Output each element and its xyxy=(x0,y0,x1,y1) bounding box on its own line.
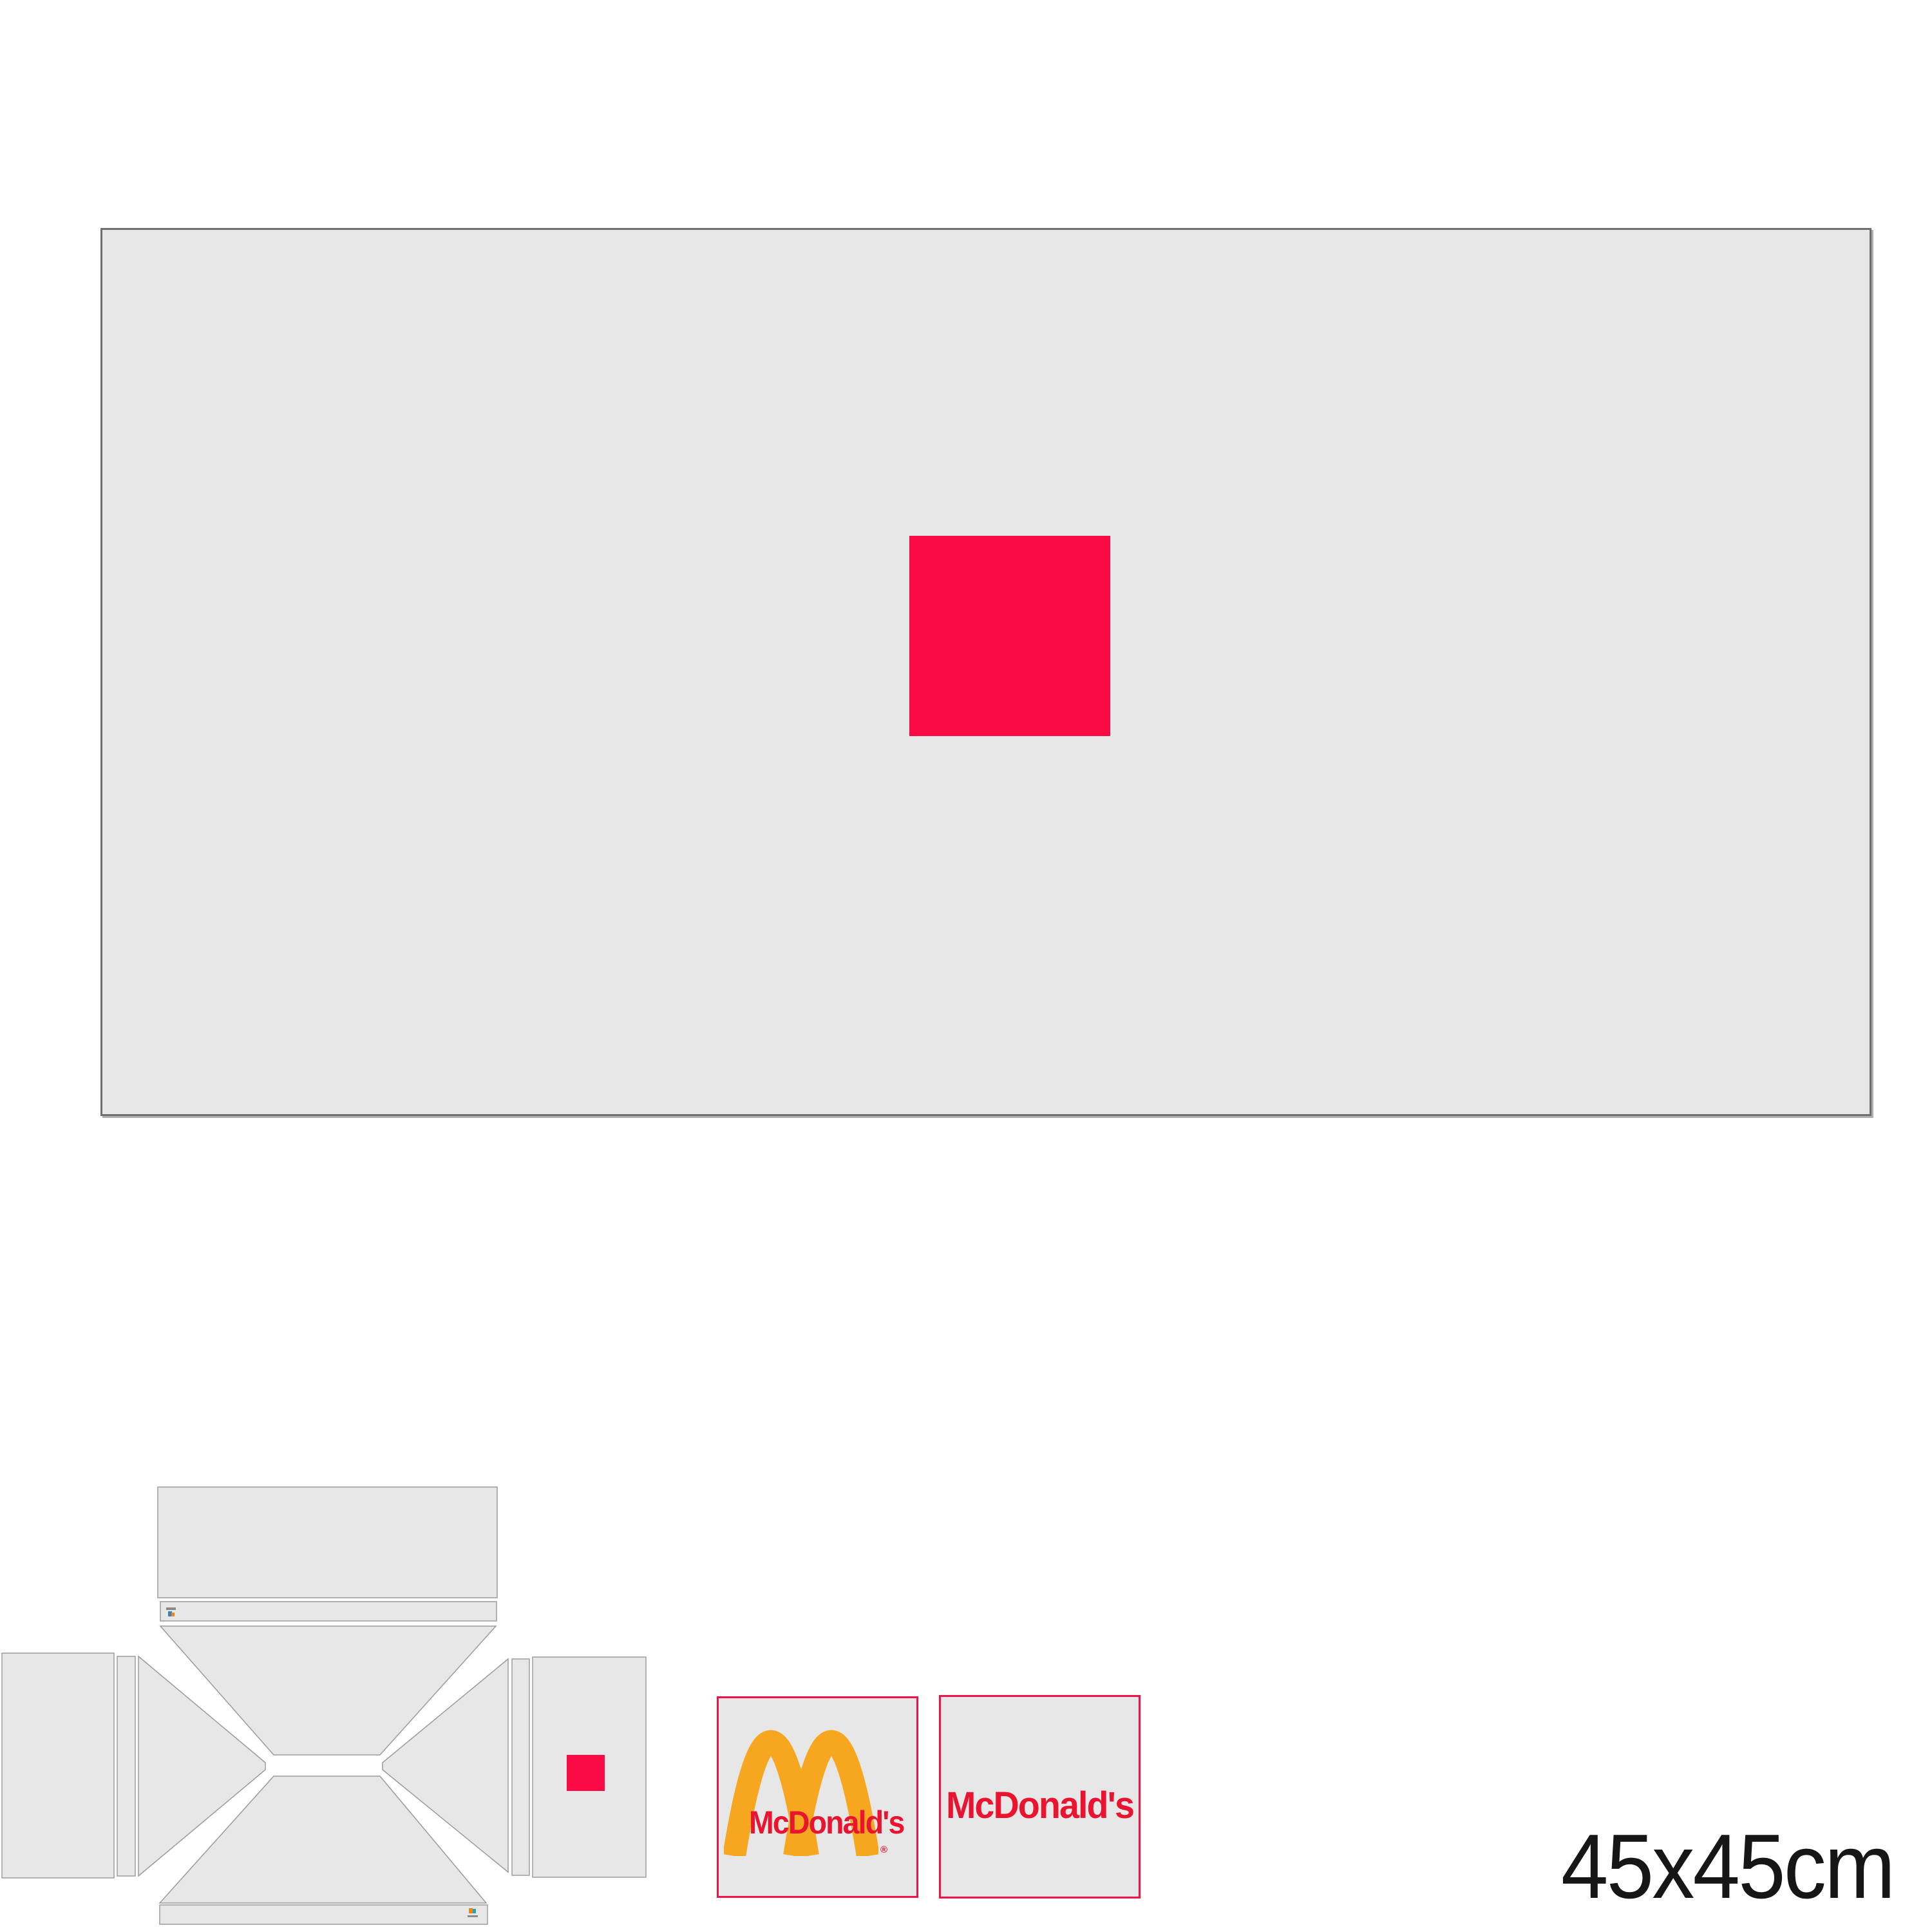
brand-swatch-logo: McDonald's ® xyxy=(717,1696,918,1898)
mcdonalds-wordmark: McDonald's xyxy=(945,1787,1135,1824)
artboard: McDonald's ® McDonald's 45x45cm xyxy=(0,0,1932,1932)
dieline-cutout-marker xyxy=(567,1755,605,1791)
dieline-bottom-hinge-strip xyxy=(160,1905,488,1924)
dieline-lid-panel xyxy=(158,1487,497,1598)
box-dieline xyxy=(0,1481,650,1932)
mcdonalds-wordmark: McDonald's xyxy=(749,1806,904,1839)
size-label: 45x45cm xyxy=(1561,1821,1893,1913)
banner-preview-panel xyxy=(100,228,1871,1116)
dieline-left-end-panel xyxy=(2,1653,114,1878)
registered-trademark: ® xyxy=(880,1845,887,1855)
dieline-right-hinge-strip xyxy=(512,1659,529,1875)
brand-swatch-wordmark: McDonald's xyxy=(939,1695,1141,1899)
dieline-left-hinge-strip xyxy=(117,1656,135,1876)
dieline-top-hinge-strip xyxy=(160,1602,497,1621)
cutout-window-square xyxy=(909,536,1110,736)
